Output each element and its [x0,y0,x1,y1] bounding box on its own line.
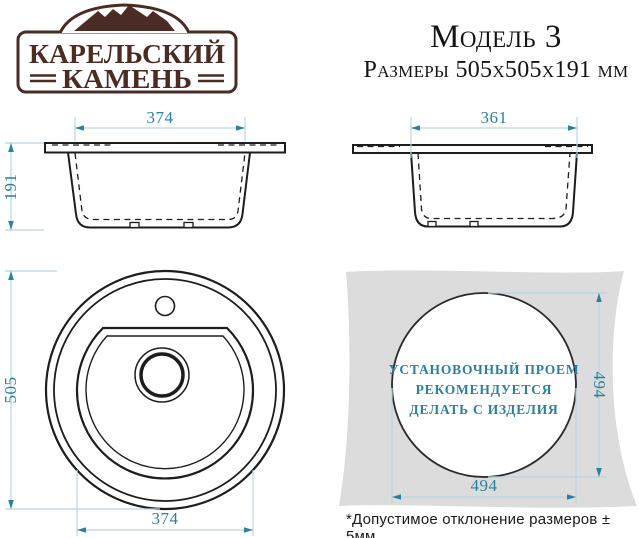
dim-top-width-right-view: 361 [481,108,508,127]
drain-fitting-mark [184,223,193,228]
bowl-inner-wall-hidden [418,153,570,219]
tolerance-footnote: *Допустимое отклонение размеров ± 5мм [346,511,638,538]
dim-cutout-width: 494 [471,476,498,495]
model-title: Модель 3 [352,20,639,55]
dim-height: 191 [1,174,20,201]
dim-top-width-left-view: 374 [147,108,174,127]
cutout-note-line2: РЕКОМЕНДУЕТСЯ [416,382,553,397]
drain-hole [141,354,183,396]
size-subtitle: Размеры 505х505х191 мм [352,57,639,83]
technical-sheet: КАРЕЛЬСКИЙ КАМЕНЬ 374 191 [0,0,639,538]
bowl-outer-wall [411,153,577,227]
cutout-note-line1: УСТАНОВОЧНЫЙ ПРОЕМ [389,362,580,377]
drain-recess [135,348,189,402]
dim-cutout-height: 494 [590,372,609,399]
drain-fitting-mark [470,222,478,227]
dim-outer-diameter: 505 [1,377,20,404]
bowl-inner-wall-hidden [75,153,245,220]
title-block: Модель 3 Размеры 505х505х191 мм [352,20,639,83]
drain-fitting-mark [428,222,436,227]
top-view: 505 374 [1,271,284,536]
drain-fitting-mark [130,223,139,228]
side-view-left: 374 191 [1,108,285,230]
inner-rim-circle [54,279,276,501]
cutout-note-line3: ДЕЛАТЬ С ИЗДЕЛИЯ [409,402,558,417]
outer-rim-circle [46,271,284,509]
dim-bowl-width: 374 [152,509,179,528]
side-view-right: 361 [353,108,592,227]
brand-logo: КАРЕЛЬСКИЙ КАМЕНЬ [18,5,236,94]
bowl-top-edge [77,328,253,478]
sink-rim-section [45,143,285,153]
faucet-hole [156,297,175,316]
logo-text-line2: КАМЕНЬ [62,64,192,94]
bowl-outer-wall [68,153,250,228]
cutout-view: УСТАНОВОЧНЫЙ ПРОЕМ РЕКОМЕНДУЕТСЯ ДЕЛАТЬ … [339,270,637,507]
